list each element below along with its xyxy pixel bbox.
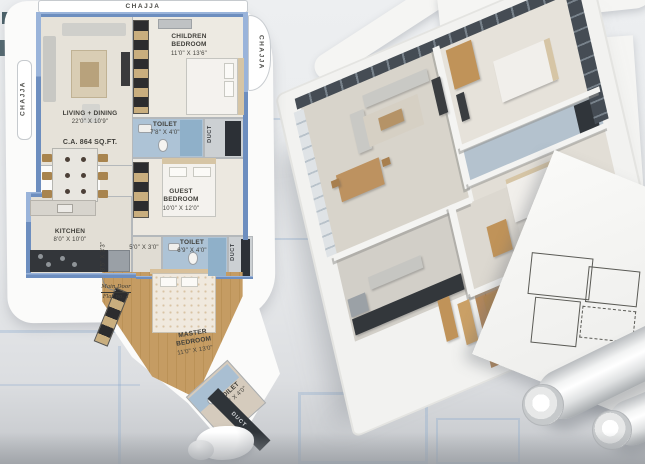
label-passage: 5'0" X 3'0": [127, 245, 161, 253]
dining-chair: [98, 172, 108, 180]
fridge: [108, 250, 130, 272]
dining-table: [52, 148, 98, 202]
dining-chair: [98, 190, 108, 198]
label-kitchen: KITCHEN 8'0" X 10'0": [34, 228, 106, 245]
label-duct-mid: DUCT: [230, 237, 238, 267]
dining-chair: [42, 172, 52, 180]
label-guest-bedroom: GUEST BEDROOM 10'0" X 12'0": [146, 188, 216, 214]
pillow: [224, 81, 234, 97]
kitchen-platform: [30, 250, 108, 272]
wc-fixture: [158, 139, 168, 152]
dresser: [158, 19, 192, 29]
children-bed: [186, 58, 238, 115]
duct-shaft: [225, 121, 241, 156]
burner: [46, 262, 51, 267]
plate: [65, 189, 70, 194]
tv-unit: [121, 52, 130, 86]
headboard: [162, 158, 216, 164]
plate: [81, 157, 86, 162]
headboard: [238, 58, 244, 115]
duct-shaft: [241, 239, 250, 276]
outer-wall: [36, 12, 248, 17]
chajja-label-left: CHAJJA: [20, 79, 29, 119]
outer-wall: [243, 12, 248, 240]
pillow: [160, 277, 177, 287]
label-living-dining: LIVING + DINING 22'0" X 10'9": [42, 110, 138, 127]
dining-chair: [42, 154, 52, 162]
label-carpet-area: C.A. 864 SQ.FT.: [42, 138, 138, 147]
floor-plan-image: CHAJJA CHAJJA CHAJJA TOILET 6'0" X 4'0" …: [0, 0, 645, 464]
sofa: [62, 23, 126, 36]
kitchen-counter: [30, 200, 96, 216]
plate: [81, 173, 86, 178]
pillow: [169, 167, 187, 177]
dining-chair: [42, 190, 52, 198]
chajja-label-right: CHAJJA: [256, 32, 265, 74]
outer-wall: [26, 273, 136, 278]
outer-wall: [36, 12, 41, 196]
label-children-bedroom: CHILDREN BEDROOM 11'0" X 13'6": [142, 33, 236, 59]
plate: [65, 157, 70, 162]
sofa: [43, 36, 56, 102]
kitchen-sink: [57, 204, 73, 213]
label-duct-top: DUCT: [207, 119, 215, 149]
bottom-shadow: [0, 432, 645, 464]
label-toilet-mid: TOILET 6'9" X 4'0": [163, 239, 221, 256]
rug: [71, 50, 107, 98]
master-bed: [152, 273, 216, 333]
pillow: [181, 277, 198, 287]
plate: [81, 189, 86, 194]
burner: [60, 256, 65, 261]
label-main-door: Main Door Flat no. 1: [84, 283, 148, 302]
dining-chair: [98, 154, 108, 162]
burner: [72, 262, 77, 267]
blueprint-roll-end: [522, 384, 564, 426]
plate: [65, 173, 70, 178]
sketch-box: [527, 252, 593, 300]
pillow: [193, 167, 211, 177]
pillow: [224, 63, 234, 79]
sketch-box: [530, 297, 581, 348]
burner: [38, 254, 43, 259]
background-blueprint-line: [0, 384, 140, 386]
sketch-box: [585, 266, 640, 307]
chajja-label-top: CHAJJA: [125, 3, 160, 10]
label-toilet-top: TOILET 7'8" X 4'0": [134, 121, 196, 138]
label-passage-long: 8'5" X 3'3": [101, 228, 110, 286]
rug-center: [80, 62, 99, 87]
